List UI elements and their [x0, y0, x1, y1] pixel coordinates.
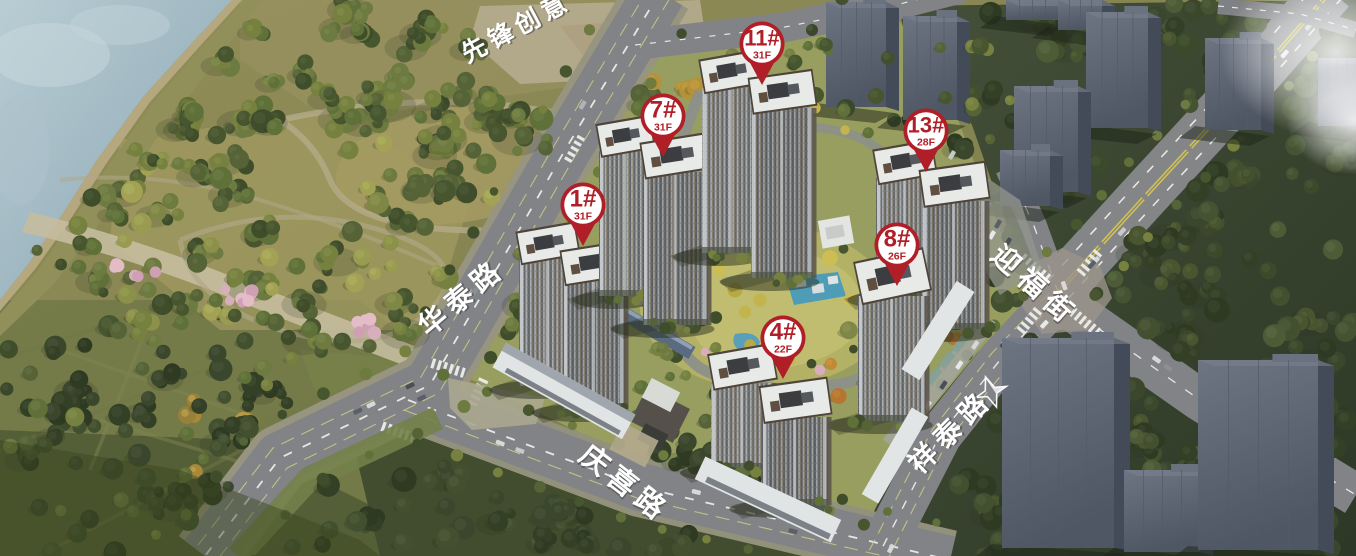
svg-text:11#: 11#: [744, 26, 780, 51]
svg-text:28F: 28F: [917, 137, 936, 149]
svg-text:7#: 7#: [650, 97, 677, 124]
svg-text:26F: 26F: [888, 251, 907, 263]
svg-text:4#: 4#: [770, 319, 797, 346]
svg-text:22F: 22F: [774, 344, 793, 356]
svg-text:13#: 13#: [908, 113, 945, 138]
svg-text:31F: 31F: [574, 211, 593, 223]
svg-text:31F: 31F: [654, 122, 673, 134]
svg-text:1#: 1#: [570, 186, 597, 213]
svg-text:8#: 8#: [884, 226, 911, 253]
svg-text:31F: 31F: [753, 50, 772, 62]
